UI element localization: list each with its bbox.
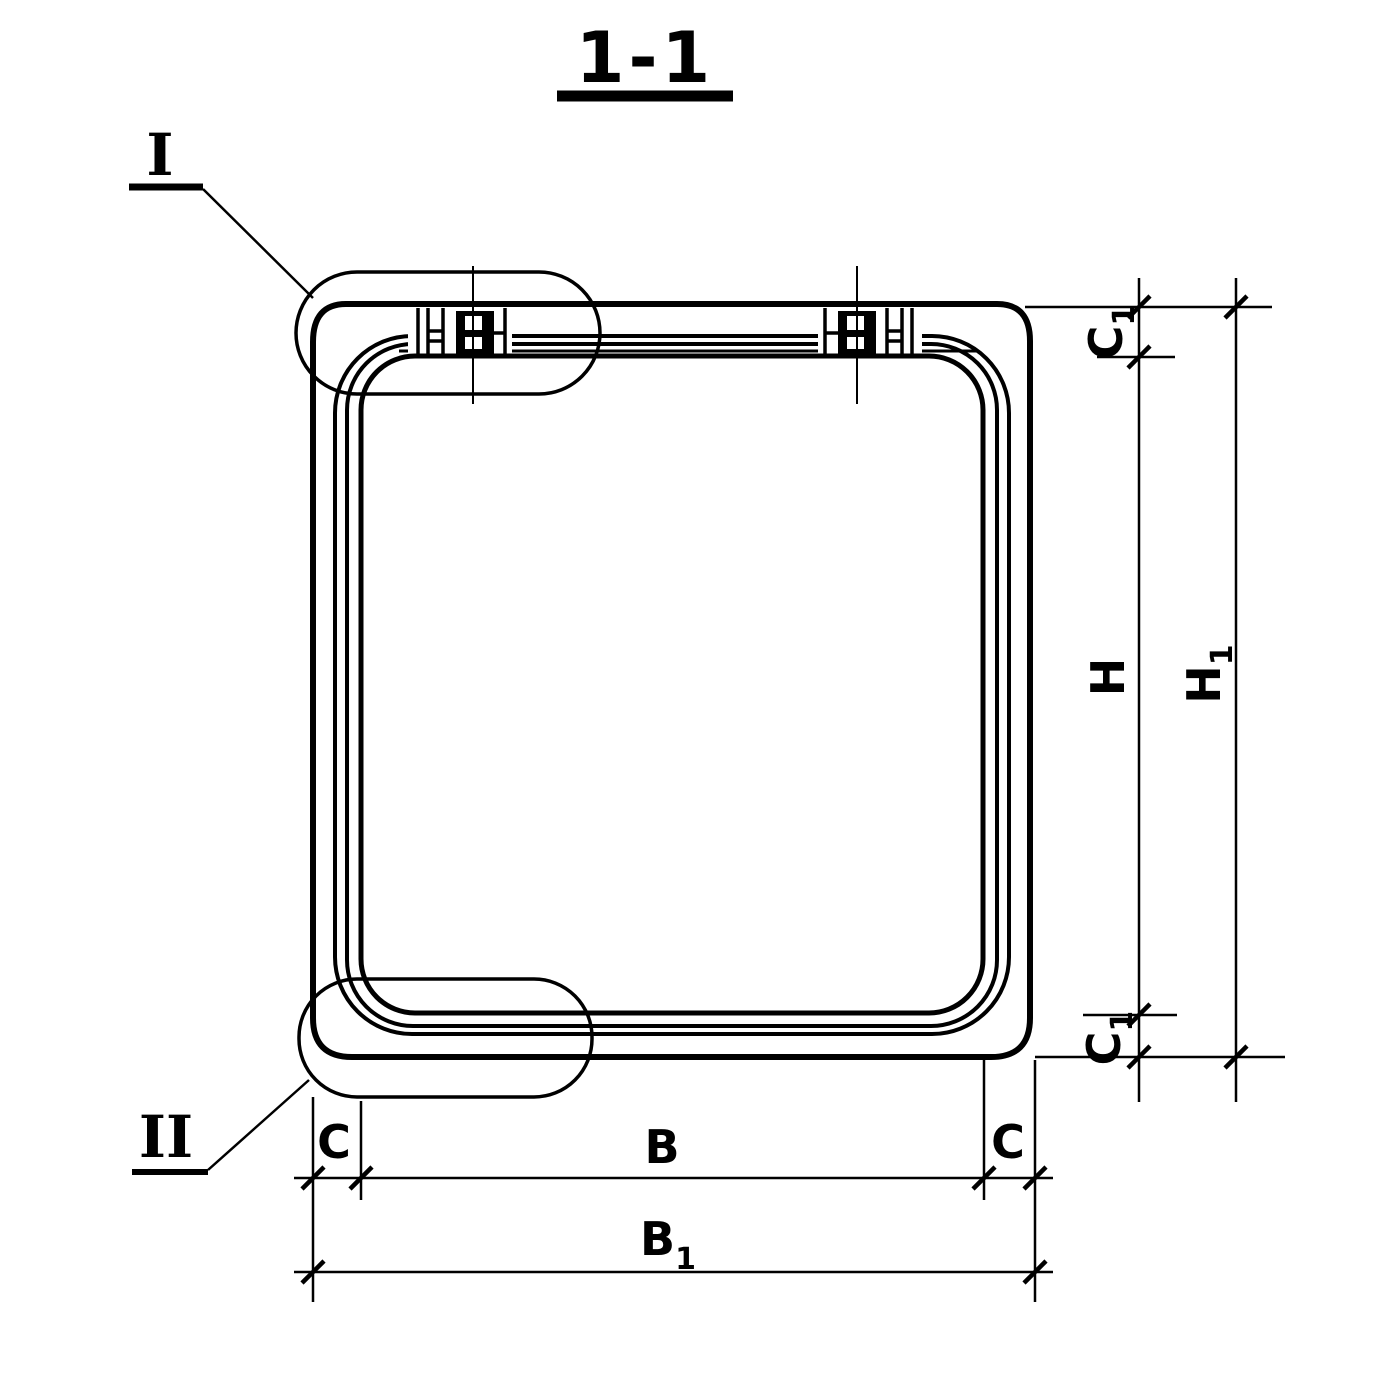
dim-subscript: 1 (675, 1242, 696, 1277)
dim-text: B (644, 1120, 679, 1174)
dim-text: C (1079, 326, 1133, 360)
dim-subscript: 1 (1205, 644, 1240, 665)
height-extension-lines (1025, 307, 1285, 1057)
inner-contour-face (361, 356, 983, 1013)
callout-detail-one: I (129, 121, 313, 298)
dim-text: H (1081, 658, 1135, 697)
dim-label-C1-top: C1 (1079, 305, 1142, 360)
callout-I-leader (203, 189, 313, 298)
dim-text: C (991, 1115, 1025, 1169)
drawing-title: 1-1 (557, 17, 733, 99)
height-dimensions: C1 H H1 C1 (1025, 278, 1285, 1102)
dim-text: C (1077, 1032, 1131, 1066)
frame-section (313, 266, 1030, 1057)
dim-label-H1: H1 (1177, 644, 1240, 703)
dim-label-C-right: C (991, 1115, 1025, 1169)
outer-contour (313, 304, 1030, 1057)
inner-contour-mid-chamfer (347, 344, 997, 1026)
dim-subscript: 1 (1107, 305, 1142, 326)
dim-text: B (640, 1212, 675, 1266)
joint-slot-bar (847, 330, 864, 337)
dim-text: H (1177, 665, 1231, 704)
section-drawing: 1-1 (0, 0, 1374, 1379)
callout-II-leader (208, 1080, 309, 1170)
inner-contour-outer-chamfer (335, 336, 1009, 1034)
drawing-sheet: 1-1 (0, 0, 1374, 1379)
dim-label-C-left: C (317, 1115, 351, 1169)
callout-detail-two: II (132, 1080, 309, 1172)
dim-label-B1: B1 (640, 1212, 696, 1277)
dim-label-H: H (1081, 658, 1135, 697)
section-title: 1-1 (576, 17, 714, 99)
dim-label-C1-bottom: C1 (1077, 1011, 1140, 1066)
dim-label-B: B (644, 1120, 679, 1174)
callout-II-label: II (139, 1103, 193, 1171)
dim-subscript: 1 (1105, 1011, 1140, 1032)
callout-I-label: I (146, 121, 173, 189)
detail-circle-bottom-left (299, 979, 592, 1097)
dim-text: C (317, 1115, 351, 1169)
